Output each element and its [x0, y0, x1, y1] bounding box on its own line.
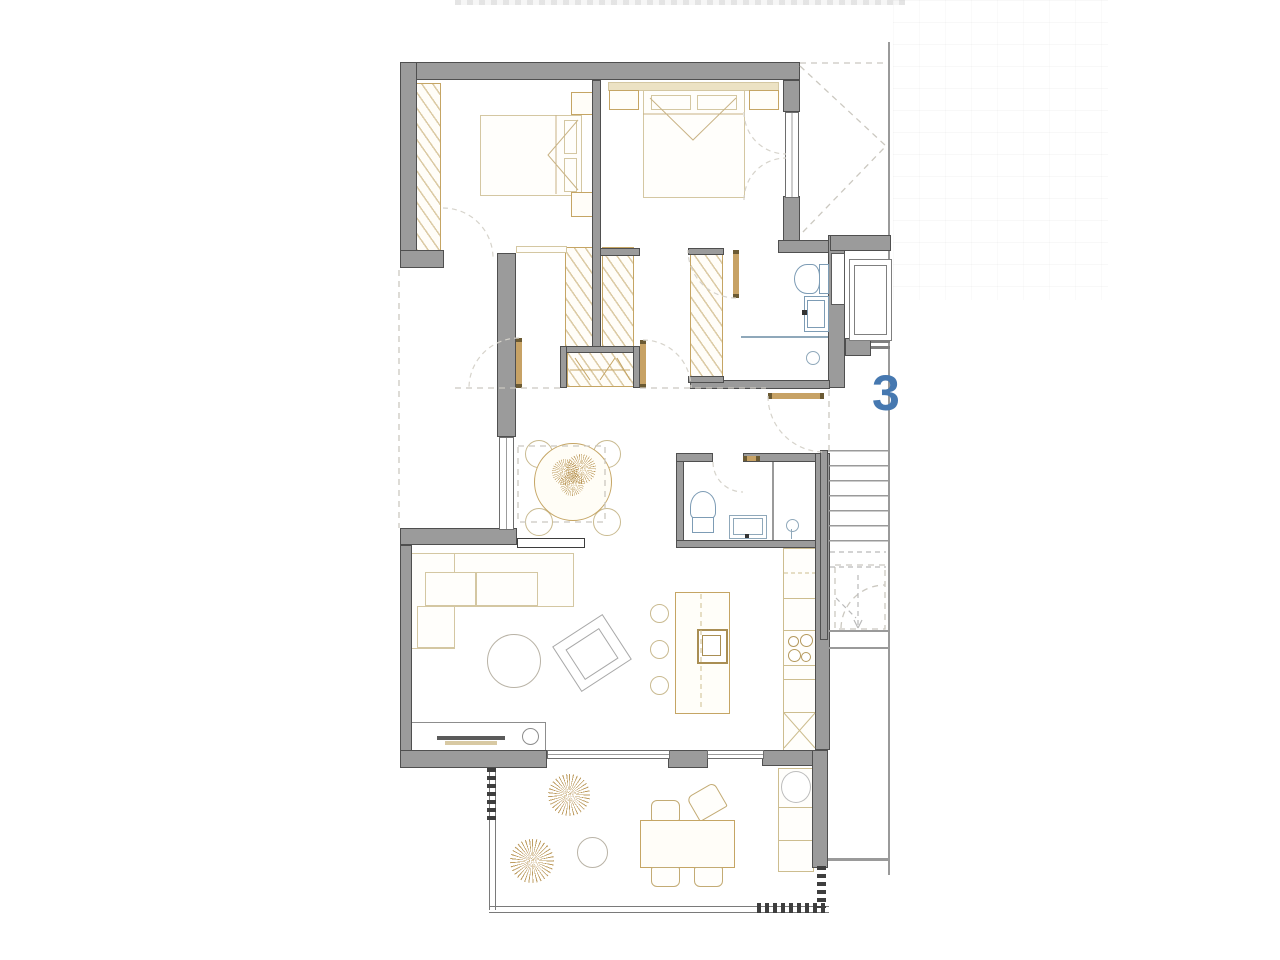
wall-bed1-left-cap: [400, 250, 444, 268]
terrace-balusters-left: [487, 768, 496, 822]
unit-number-label: 3: [872, 364, 900, 422]
wall-bed1-left: [400, 62, 417, 268]
shower2-arm: [791, 529, 792, 539]
burner-2: [800, 634, 813, 647]
burner-1: [788, 636, 799, 647]
toilet2-base: [692, 517, 714, 533]
coffee-table: [487, 634, 541, 688]
tv-soundbar: [445, 741, 497, 745]
wall-stair-left: [820, 450, 828, 640]
terrace-storage-cell3: [778, 840, 814, 872]
bathtub1-edge: [741, 336, 828, 338]
kitchen-counter-cell1: [783, 598, 818, 632]
wall-bath2-left: [676, 453, 684, 548]
nightstand2-left: [609, 90, 639, 110]
wall-bedroom-divider: [592, 80, 601, 348]
sofa-cushion-3: [417, 606, 455, 648]
terrace-storage-cell2: [778, 807, 814, 842]
bed2-pillow-right: [697, 95, 737, 110]
wall-bottom-mid: [668, 750, 708, 768]
island-stool-1: [650, 604, 669, 623]
terrace-chair-4: [694, 867, 723, 887]
window-bedroom2: [785, 112, 799, 198]
kitchen-appliance-cell: [783, 712, 818, 751]
wall-terrace-right: [812, 750, 828, 868]
elevator-car: [854, 265, 887, 335]
island-sink-basin: [702, 635, 721, 656]
site-boundary-line: [888, 42, 890, 875]
stair-treads-upper: [828, 450, 888, 545]
toilet2-bowl: [690, 491, 716, 520]
floor-plan: 3: [0, 0, 1280, 960]
wall-wardrobe-cap-bottom: [688, 376, 724, 383]
door-leaf-bedroom2: [640, 340, 646, 388]
nightstand1-bottom: [571, 192, 594, 217]
sink1-tap: [802, 310, 807, 315]
neighbor-top-strip: [455, 0, 905, 5]
bed1-pillow-top: [564, 120, 577, 154]
terrace-side-table: [577, 837, 608, 868]
arc-bathroom2: [713, 462, 743, 492]
landing-dashed-rect: [835, 565, 885, 629]
toilet1-bowl: [794, 264, 820, 294]
sliding-glass-door-1: [547, 750, 670, 759]
wall-bath1-top: [778, 240, 830, 253]
closet-frame-top: [560, 346, 640, 353]
pocket-slider-panel: [517, 538, 585, 548]
nightstand2-right: [749, 90, 779, 110]
neighbor-faint-grid: [893, 0, 1108, 300]
tv-speaker: [522, 728, 539, 745]
sofa-cushion-1: [425, 572, 476, 606]
closet-frame-left: [560, 346, 567, 388]
wall-dining-southwest: [400, 528, 517, 545]
wall-elevator-top: [830, 235, 891, 251]
sink1-basin: [807, 300, 825, 328]
island-stool-2: [650, 640, 669, 659]
arc-entry: [768, 396, 824, 452]
burner-4: [801, 652, 811, 662]
burner-3: [788, 649, 801, 662]
closet-frame-right: [633, 346, 640, 388]
sliding-glass-door-2: [707, 750, 764, 759]
toilet1-tank: [819, 264, 829, 294]
nightstand1-top: [571, 92, 594, 115]
arc-bed2-curtain-top: [744, 112, 786, 154]
wall-living-bottom: [400, 750, 547, 768]
bathtub1-drain: [806, 351, 820, 365]
wall-top: [400, 62, 800, 80]
stair-line-b: [828, 647, 889, 649]
wall-hall-left: [497, 253, 516, 437]
bed1-pillow-bottom: [564, 158, 577, 192]
terrace-balusters-right: [817, 866, 826, 908]
tv-screen: [437, 736, 505, 740]
bedroom1-sill: [516, 246, 567, 253]
neighbor-terrace-x: [800, 63, 886, 233]
elevator-door-niche: [831, 253, 845, 305]
arc-bed2-curtain-bottom: [744, 158, 786, 200]
landing-dashed-arc: [841, 585, 885, 628]
terrace-chair-3: [651, 867, 680, 887]
stair-bottom-line: [828, 858, 889, 861]
window-dining: [499, 437, 514, 530]
arc-bedroom1-interior: [443, 208, 493, 258]
wall-bed2-south: [600, 248, 640, 256]
island-stool-3: [650, 676, 669, 695]
shower2-head: [786, 519, 799, 532]
wardrobe-hall-center: [602, 247, 634, 348]
wall-bottom-right: [762, 750, 814, 766]
arc-bedroom2: [643, 340, 691, 388]
terrace-plant-1: [548, 774, 590, 816]
terrace-chair-2: [686, 782, 728, 822]
door-leaf-bedroom1: [516, 338, 522, 388]
kitchen-tall-cabinet: [783, 548, 818, 600]
terrace-plant-2: [510, 839, 554, 883]
door-leaf-bathroom2: [743, 456, 760, 461]
closet-interior: [567, 353, 635, 387]
terrace-dining-table: [640, 820, 735, 868]
landing-line-1: [871, 340, 890, 343]
door-leaf-entry: [768, 393, 824, 399]
terrace-chair-1: [651, 800, 680, 821]
wall-wardrobe-cap-top: [688, 248, 724, 255]
wall-bath2-top-left: [676, 453, 713, 462]
stair-line-a: [828, 630, 889, 632]
landing-line-2: [871, 346, 890, 349]
sink2-basin: [733, 518, 763, 535]
bed2-pillow-left: [651, 95, 691, 110]
kitchen-counter-cell3: [783, 679, 818, 714]
sink2-tap: [745, 534, 749, 538]
stair-dashed-path: [830, 552, 886, 628]
shower2-partition: [772, 462, 774, 540]
wall-bed2-right-top: [783, 80, 800, 112]
wardrobe-hall-left: [565, 247, 594, 348]
door-leaf-bathroom1: [733, 250, 739, 298]
sofa-cushion-2: [476, 572, 538, 606]
dining-plant-3: [560, 472, 584, 496]
terrace-storage-basin: [781, 771, 811, 803]
wardrobe-hall-right: [690, 254, 723, 378]
wall-living-left: [400, 545, 412, 768]
wall-bath2-bottom: [676, 540, 820, 548]
